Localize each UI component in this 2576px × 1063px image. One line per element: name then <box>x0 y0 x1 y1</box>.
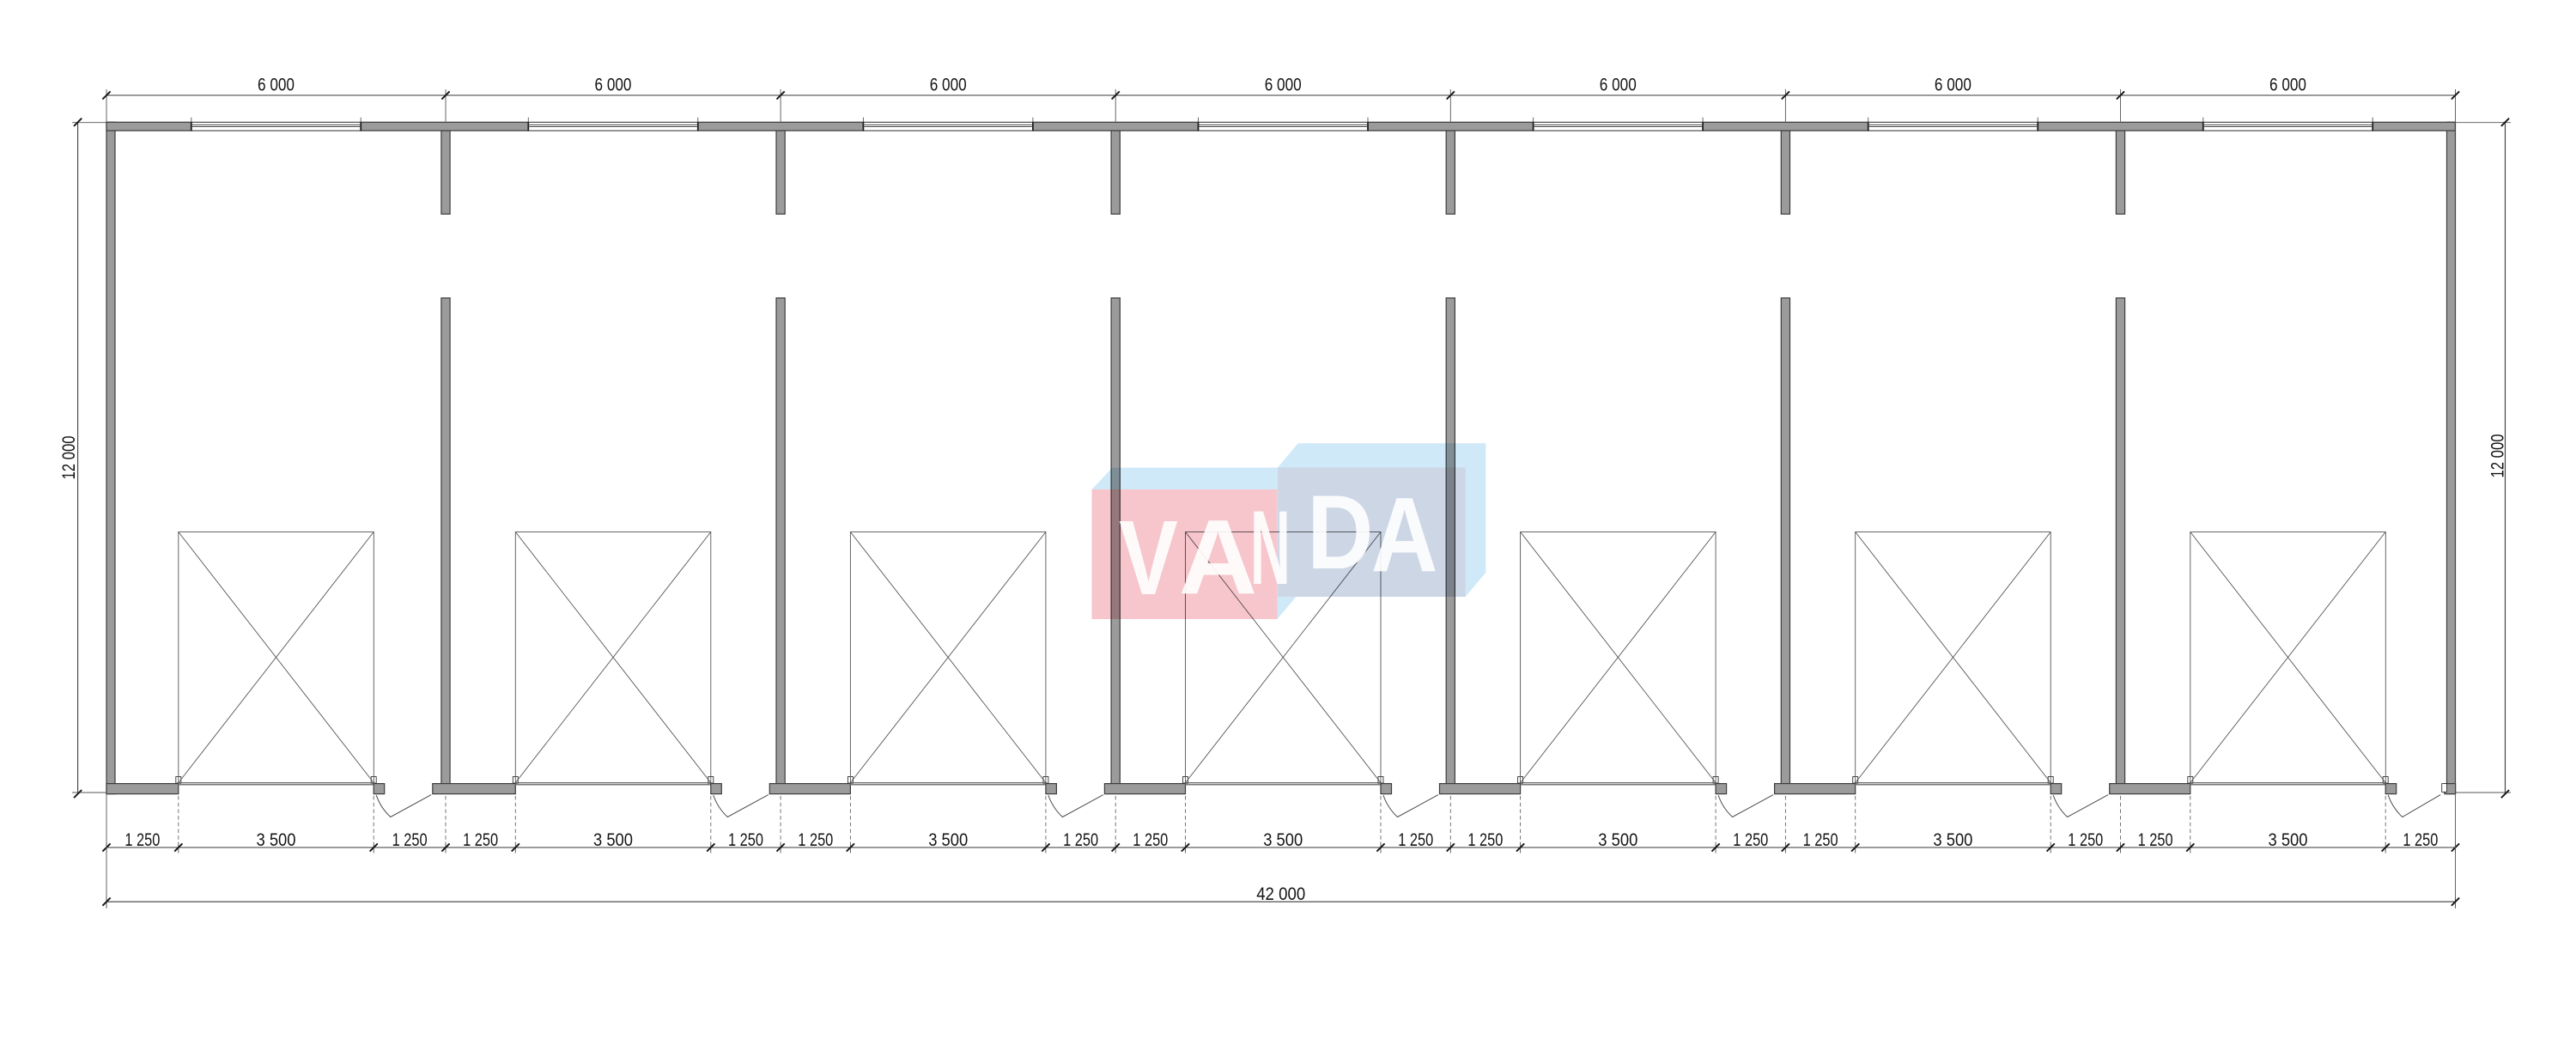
svg-text:3 500: 3 500 <box>1263 829 1303 850</box>
svg-text:3 500: 3 500 <box>2269 829 2308 850</box>
svg-text:1 250: 1 250 <box>1803 829 1838 850</box>
svg-text:6 000: 6 000 <box>1600 75 1637 95</box>
svg-text:1 250: 1 250 <box>2068 829 2103 850</box>
svg-text:1 250: 1 250 <box>1063 829 1098 850</box>
svg-text:A: A <box>1179 499 1257 617</box>
svg-text:6 000: 6 000 <box>930 75 967 95</box>
svg-text:1 250: 1 250 <box>125 829 160 850</box>
svg-text:12 000: 12 000 <box>58 435 79 479</box>
svg-text:1 250: 1 250 <box>2138 829 2173 850</box>
svg-text:3 500: 3 500 <box>257 829 296 850</box>
svg-text:6 000: 6 000 <box>2269 75 2306 95</box>
svg-text:1 250: 1 250 <box>392 829 428 850</box>
svg-text:6 000: 6 000 <box>595 75 632 95</box>
svg-text:1 250: 1 250 <box>1733 829 1768 850</box>
svg-text:12 000: 12 000 <box>2487 434 2507 477</box>
svg-text:3 500: 3 500 <box>1933 829 1972 850</box>
svg-text:6 000: 6 000 <box>1265 75 1302 95</box>
svg-text:3 500: 3 500 <box>1598 829 1637 850</box>
svg-text:A: A <box>1371 475 1438 593</box>
svg-text:V: V <box>1119 499 1178 617</box>
svg-text:6 000: 6 000 <box>258 75 295 95</box>
svg-text:1 250: 1 250 <box>1467 829 1503 850</box>
svg-text:1 250: 1 250 <box>1398 829 1433 850</box>
svg-text:1 250: 1 250 <box>2403 829 2438 850</box>
svg-text:42 000: 42 000 <box>1256 884 1305 904</box>
svg-text:1 250: 1 250 <box>798 829 833 850</box>
svg-text:1 250: 1 250 <box>463 829 498 850</box>
svg-text:1 250: 1 250 <box>1133 829 1168 850</box>
svg-text:3 500: 3 500 <box>928 829 968 850</box>
svg-text:3 500: 3 500 <box>593 829 633 850</box>
svg-text:N: N <box>1250 489 1291 607</box>
svg-text:D: D <box>1307 474 1373 592</box>
svg-text:1 250: 1 250 <box>728 829 763 850</box>
svg-text:6 000: 6 000 <box>1935 75 1971 95</box>
